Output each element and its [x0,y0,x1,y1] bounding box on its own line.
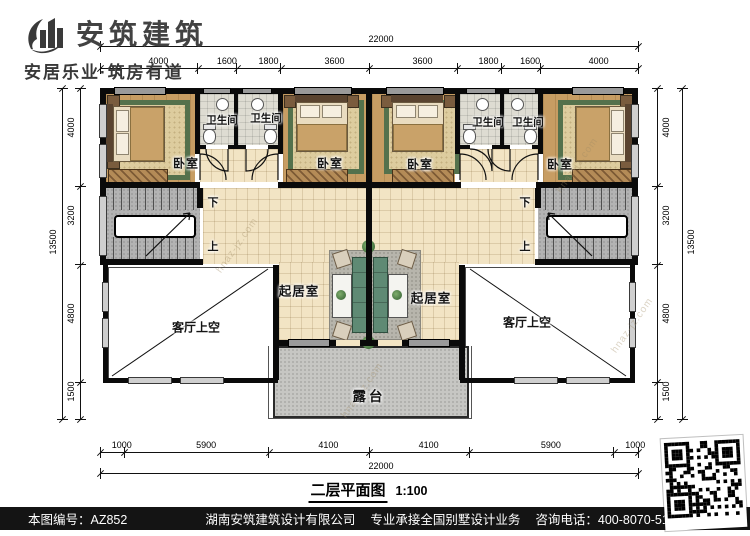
dim-label: 3200 [661,225,671,226]
wall [268,145,283,149]
stair-treads [538,188,632,210]
furniture-wardrobe [108,169,168,183]
window [288,339,330,347]
dim-label: 22000 [369,34,370,44]
window [629,282,636,312]
furniture-pillow [116,133,129,155]
dim-label: 13500 [686,253,696,254]
window [386,87,444,95]
dimension-tick [654,416,661,423]
drawing-number: 本图编号：AZ852 [28,509,127,528]
stair-treads [106,188,200,210]
footer-bar: 本图编号：AZ852 湖南安筑建筑设计有限公司 专业承接全国别墅设计业务 咨询电… [0,507,750,530]
dim-label: 3600 [324,56,325,66]
dimension-tick [635,65,642,72]
dimension-tick [635,470,642,477]
dim-label: 1500 [661,400,671,401]
logo-block: 安筑建筑 安居乐业·筑房有道 [24,12,208,83]
furniture-toilet [203,129,216,144]
stair-down-label-1: 下 [208,194,219,210]
window [102,282,109,312]
furniture-toilet [463,129,476,144]
stair-down-label-2: 下 [520,194,531,210]
wall [459,265,465,380]
dim-label: 4100 [419,440,420,450]
window [114,87,166,95]
window [631,104,639,138]
stair-up-label-1: 上 [208,238,219,254]
dim-label: 1600 [520,56,521,66]
dim-label: 4100 [318,440,319,450]
stair-landing [546,215,628,238]
stair-treads [538,237,632,259]
furniture-blanket [297,124,347,151]
dimension-line [80,88,81,419]
window [514,377,558,384]
room-label-bedroom-1: 卧室 [173,155,199,172]
dim-label: 1000 [625,440,626,450]
footer-services: 专业承接全国别墅设计业务 [370,509,520,528]
room-label-living-1: 起居室 [279,281,320,300]
wall [372,182,461,188]
wall [535,188,541,208]
room-label-bedroom-4: 卧室 [547,156,573,173]
dim-label: 13500 [48,253,58,254]
dimension-tick [679,416,686,423]
hallway-floor [200,149,278,182]
wall [492,145,510,149]
furniture-pillow [611,110,624,132]
dimension-line [682,88,683,419]
room-label-void-1: 客厅上空 [172,319,220,336]
wall [195,145,206,149]
furniture-headboard [295,95,347,102]
dim-label: 4800 [661,323,671,324]
stair-landing [114,215,196,238]
room-label-terrace: 露台 [353,385,386,405]
furniture-nstand [347,95,359,108]
window [572,87,624,95]
window [203,88,231,94]
room-label-bathroom-1: 卫生间 [206,113,238,128]
dim-label: 4000 [661,137,671,138]
stair-treads [106,237,200,259]
company-logo-icon [24,12,70,54]
dim-label: 4000 [66,137,76,138]
wall [536,182,638,188]
qr-code [661,435,748,531]
dimension-line [100,473,638,474]
window [294,87,352,95]
dim-label: 1800 [479,56,480,66]
window [242,88,272,94]
room-label-living-2: 起居室 [411,288,452,307]
furniture-pillow [418,105,438,118]
room-label-bedroom-2: 卧室 [317,155,343,172]
terrace-door [378,340,402,346]
window [508,88,536,94]
wall [197,188,203,208]
dimension-tick [635,43,642,50]
wall [455,145,470,149]
furniture-pillow [322,105,342,118]
wall [532,145,543,149]
dim-label: 1500 [66,400,76,401]
window [408,339,450,347]
dimension-tick [59,416,66,423]
furniture-pillow [396,105,416,118]
dim-label: 5900 [541,440,542,450]
wall [228,145,246,149]
terrace-door [336,340,360,346]
window [631,196,639,256]
room-label-void-2: 客厅上空 [503,314,551,331]
window [102,318,109,348]
window [128,377,172,384]
room-label-bedroom-3: 卧室 [407,156,433,173]
dimension-line [62,88,63,419]
dim-label: 5900 [196,440,197,450]
furniture-blanket [393,124,443,151]
furniture-toilet [524,129,537,144]
window [631,144,639,178]
furniture-sink [476,98,489,111]
dim-label: 1800 [258,56,259,66]
footer-phone: 咨询电话：400-8070-511 [535,509,674,528]
window [566,377,610,384]
furniture-pillow [300,105,320,118]
window [99,104,107,138]
furniture-sofa [373,257,388,333]
furniture-sink [251,98,264,111]
furniture-sofa [352,257,367,333]
footer-company: 湖南安筑建筑设计有限公司 [205,509,355,528]
dimension-line [657,88,658,419]
furniture-headboard [106,104,113,162]
drawing-caption: 二层平面图1:100 [309,479,428,500]
furniture-wardrobe [572,169,632,183]
company-name: 安筑建筑 [76,13,208,53]
floor-plan-sheet: 安筑建筑 安居乐业·筑房有道 2200040001600180036003600… [0,0,750,530]
dim-label: 22000 [369,461,370,471]
furniture-headboard [391,95,443,102]
stair-up-label-2: 上 [520,238,531,254]
dimension-tick [77,416,84,423]
furniture-toilet [264,129,277,144]
company-tagline: 安居乐业·筑房有道 [24,58,208,83]
window [99,196,107,256]
wall [100,182,200,188]
drawing-title: 二层平面图 [309,482,388,503]
window [180,377,224,384]
room-label-bathroom-2: 卫生间 [250,111,282,126]
furniture-plantc [336,290,346,300]
furniture-blanket [130,107,164,161]
dim-label: 1600 [217,56,218,66]
dimension-tick [635,449,642,456]
dim-label: 3200 [66,225,76,226]
window [99,144,107,178]
room-label-bathroom-4: 卫生间 [512,115,544,130]
room-label-bathroom-3: 卫生间 [472,115,504,130]
furniture-sink [511,98,524,111]
furniture-pillow [611,133,624,155]
wall [100,259,203,265]
dim-label: 4000 [589,56,590,66]
wall [278,182,366,188]
furniture-pillow [116,110,129,132]
hallway-floor [460,149,538,182]
furniture-plantc [392,290,402,300]
window [466,88,496,94]
dim-label: 3600 [413,56,414,66]
furniture-sink [216,98,229,111]
drawing-scale: 1:100 [396,484,428,498]
wall [366,88,372,346]
dim-label: 1000 [112,440,113,450]
wall [535,259,638,265]
dim-label: 4800 [66,323,76,324]
